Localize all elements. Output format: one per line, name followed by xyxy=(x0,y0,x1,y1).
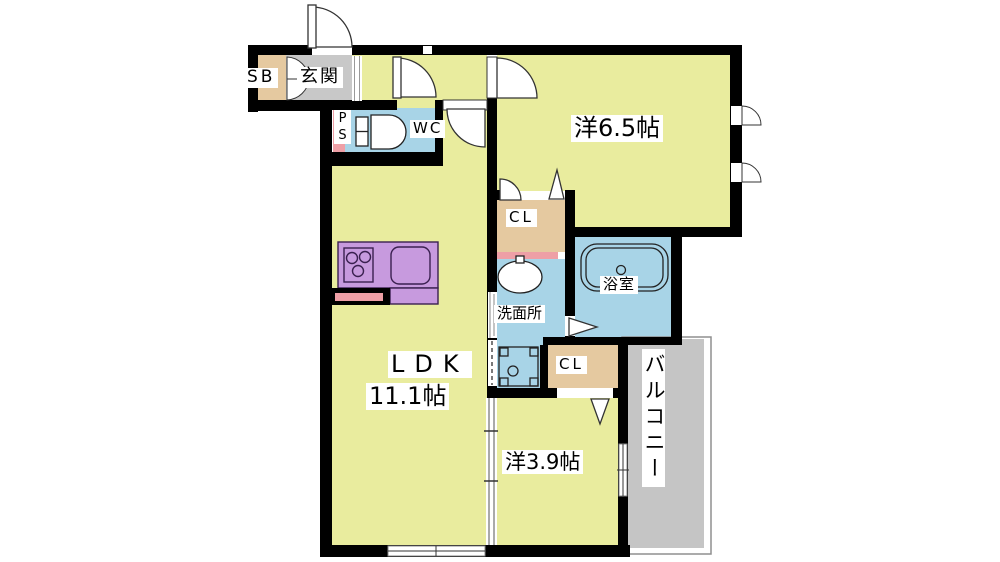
wall-left xyxy=(320,100,332,557)
label-closet-upper: CL xyxy=(506,209,537,227)
balcony xyxy=(622,337,711,554)
wall-top-main xyxy=(352,45,742,55)
label-closet-lower: CL xyxy=(556,356,587,374)
kitchen-counter-top xyxy=(338,242,438,288)
label-entrance: 玄関 xyxy=(297,67,343,88)
wall-wash-bath-stub xyxy=(565,336,575,345)
casement-window-gap xyxy=(731,163,742,182)
entrance-step-divider xyxy=(352,56,362,101)
label-shoe-box: SB xyxy=(244,68,278,88)
kitchen-counter-return xyxy=(390,288,438,304)
wall-right-6-5 xyxy=(730,45,742,237)
western-6-5-door-leaf xyxy=(487,57,497,98)
wall-closet-top-a xyxy=(487,190,500,200)
label-washroom: 洗面所 xyxy=(494,305,545,323)
label-toilet: WC xyxy=(410,120,445,138)
closet-slider-strip xyxy=(497,252,558,259)
wall-bath-bottom xyxy=(543,337,682,345)
entrance-door-arc xyxy=(312,7,352,47)
closet-lower-door-gap xyxy=(557,389,613,398)
wall-hall-wc xyxy=(332,100,397,110)
entrance-door-leaf xyxy=(308,5,316,48)
label-ldk-size: 11.1帖 xyxy=(366,383,449,410)
wall-entry-bottom xyxy=(248,100,332,111)
label-ldk-name: LDK xyxy=(388,351,472,378)
wall-3-9-top-a xyxy=(487,388,557,398)
label-western-3-9: 洋3.9帖 xyxy=(502,450,583,474)
floorplan-drawing xyxy=(0,0,1000,562)
label-balcony: バルコニー xyxy=(642,349,665,487)
casement-window-gap xyxy=(731,106,742,125)
ldk-partition xyxy=(486,398,497,545)
label-bathroom: 浴室 xyxy=(600,276,638,294)
toilet-door-leaf xyxy=(393,57,401,98)
laundry-area-fill xyxy=(497,345,540,388)
floorplan-canvas: SB 玄関 P S WC 洋6.5帖 CL 浴室 洗面所 CL LDK 11.1… xyxy=(0,0,1000,562)
label-pipe-space-s: S xyxy=(334,127,351,144)
toilet-bowl-icon xyxy=(371,115,406,149)
faucet-icon xyxy=(516,256,524,263)
kitchen-hanging-pink-strip xyxy=(335,293,383,301)
wall-notch xyxy=(423,46,432,54)
wall-bottom-6-5 xyxy=(567,227,742,237)
washbasin-icon xyxy=(498,261,542,293)
wall-wc-bottom xyxy=(320,152,443,166)
wall-bath-right xyxy=(671,227,682,345)
wall-laundry-closet xyxy=(540,345,548,388)
wall-wash-bath xyxy=(565,190,575,316)
label-pipe-space: P S xyxy=(334,110,351,144)
casement-window xyxy=(742,163,761,182)
label-western-6-5: 洋6.5帖 xyxy=(571,115,663,142)
casement-window xyxy=(742,106,761,125)
label-pipe-space-p: P xyxy=(334,110,351,127)
